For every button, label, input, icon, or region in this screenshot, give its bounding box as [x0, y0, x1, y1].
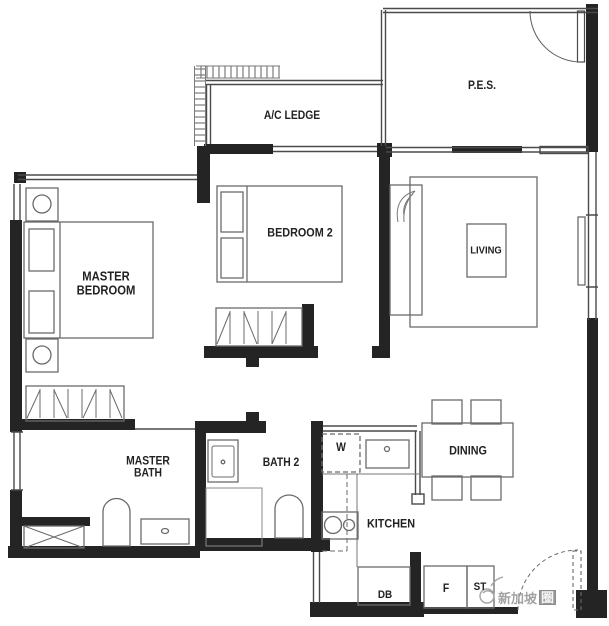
window-kitchen-left	[314, 552, 320, 603]
window-left-b	[11, 432, 23, 490]
wall-pier-bedroom2-pes	[377, 143, 392, 157]
dining-chair	[471, 400, 501, 424]
pes-door-swing-arc	[530, 11, 581, 62]
toilet-icon	[103, 499, 130, 547]
bath2-shower-area	[206, 488, 262, 546]
wall-block-top-left	[14, 172, 26, 183]
comb-top	[196, 66, 280, 78]
wall-right-top	[586, 4, 598, 152]
nightstand	[26, 188, 58, 221]
room-label-bath-2: BATH 2	[263, 457, 300, 469]
room-label-pes: P.E.S.	[468, 80, 496, 92]
wall-pes-left	[382, 10, 386, 146]
wall-bedroom2-wardrobe-side	[302, 304, 314, 348]
wall-pes-top	[383, 9, 598, 13]
watermark-text: 新加坡	[498, 588, 537, 607]
fixture-label-fridge: F	[443, 583, 449, 595]
nightstand	[26, 339, 58, 372]
master-wardrobe-hatch	[27, 389, 122, 418]
wall-left-upper	[10, 220, 22, 432]
wall-bedroom2-door-bump	[246, 358, 259, 367]
window-master-top	[18, 175, 197, 180]
wall-bedroom2-living-divider	[379, 150, 390, 346]
bedroom2-furniture	[216, 186, 342, 346]
walls	[8, 4, 607, 618]
fixture-label-store: ST	[474, 582, 487, 594]
wall-bedroom2-top	[204, 144, 273, 154]
dining-chair	[432, 400, 462, 424]
burner-icon	[344, 520, 355, 531]
bath2-vanity-basin	[212, 446, 234, 477]
room-label-master-bath: MASTER BATH	[123, 456, 173, 481]
wall-pier-master-bedroom2	[197, 146, 210, 203]
wall-stub-fridge	[410, 552, 421, 607]
comb-left	[194, 66, 206, 146]
toilet-icon	[275, 495, 303, 538]
vanity-drain	[162, 529, 169, 534]
wall-bedroom2-bottom	[204, 346, 318, 358]
dining-chair	[432, 476, 462, 500]
window-living-right	[586, 152, 598, 320]
bedroom2-wardrobe-hatch	[217, 311, 286, 344]
room-label-living: LIVING	[470, 245, 502, 256]
watermark-badge: 圈	[539, 590, 556, 606]
bath2-vanity-drain	[221, 460, 225, 464]
window-bedroom2-top	[273, 147, 377, 152]
fixture-label-washer: W	[336, 442, 346, 454]
sink-faucet	[385, 447, 390, 452]
pillow	[221, 238, 243, 278]
lamp-icon	[33, 195, 51, 213]
wall-divider-end-cap	[372, 346, 390, 358]
floor-plan: MASTER BEDROOM BEDROOM 2 LIVING P.E.S. A…	[0, 0, 609, 626]
watermark: 新加坡圈	[498, 588, 556, 607]
pillow	[221, 192, 243, 232]
dining-chair	[471, 476, 501, 500]
wall-kitchen-top	[323, 426, 417, 431]
pillow	[29, 229, 54, 271]
room-label-kitchen: KITCHEN	[367, 518, 415, 531]
room-label-ac-ledge: A/C LEDGE	[264, 110, 320, 122]
doors	[518, 11, 585, 610]
burner-icon	[325, 517, 342, 534]
master-bedroom-furniture	[24, 188, 153, 421]
kitchen-screen	[416, 431, 421, 495]
fixture-label-db: DB	[378, 590, 392, 602]
shower-x-mark	[24, 526, 84, 548]
wall-bath2-kitchen-divider	[311, 421, 323, 552]
room-label-bedroom-2: BEDROOM 2	[267, 227, 332, 240]
wall-right-lower	[587, 318, 598, 596]
pes-door-leaf	[578, 11, 585, 62]
plant-icon	[397, 191, 415, 222]
kitchen-screen-cap	[412, 494, 424, 504]
vanity-sink	[141, 519, 189, 544]
window-left-a	[14, 184, 20, 220]
wall-shower-top	[20, 517, 90, 526]
room-label-master-bedroom: MASTER BEDROOM	[70, 271, 142, 298]
floor-plan-drawing	[0, 0, 609, 626]
wall-bath-divider	[195, 428, 206, 550]
wall-bath2-door-bump	[246, 412, 259, 423]
pillow	[29, 291, 54, 333]
tv-console	[578, 217, 585, 285]
hob	[322, 512, 358, 539]
lamp-icon	[33, 346, 51, 364]
wall-bath2-bottom	[196, 538, 330, 551]
room-label-dining: DINING	[449, 445, 487, 458]
master-wardrobe	[26, 386, 124, 421]
kitchen-sink	[366, 440, 409, 468]
wall-bottom-kitchen	[310, 602, 424, 617]
